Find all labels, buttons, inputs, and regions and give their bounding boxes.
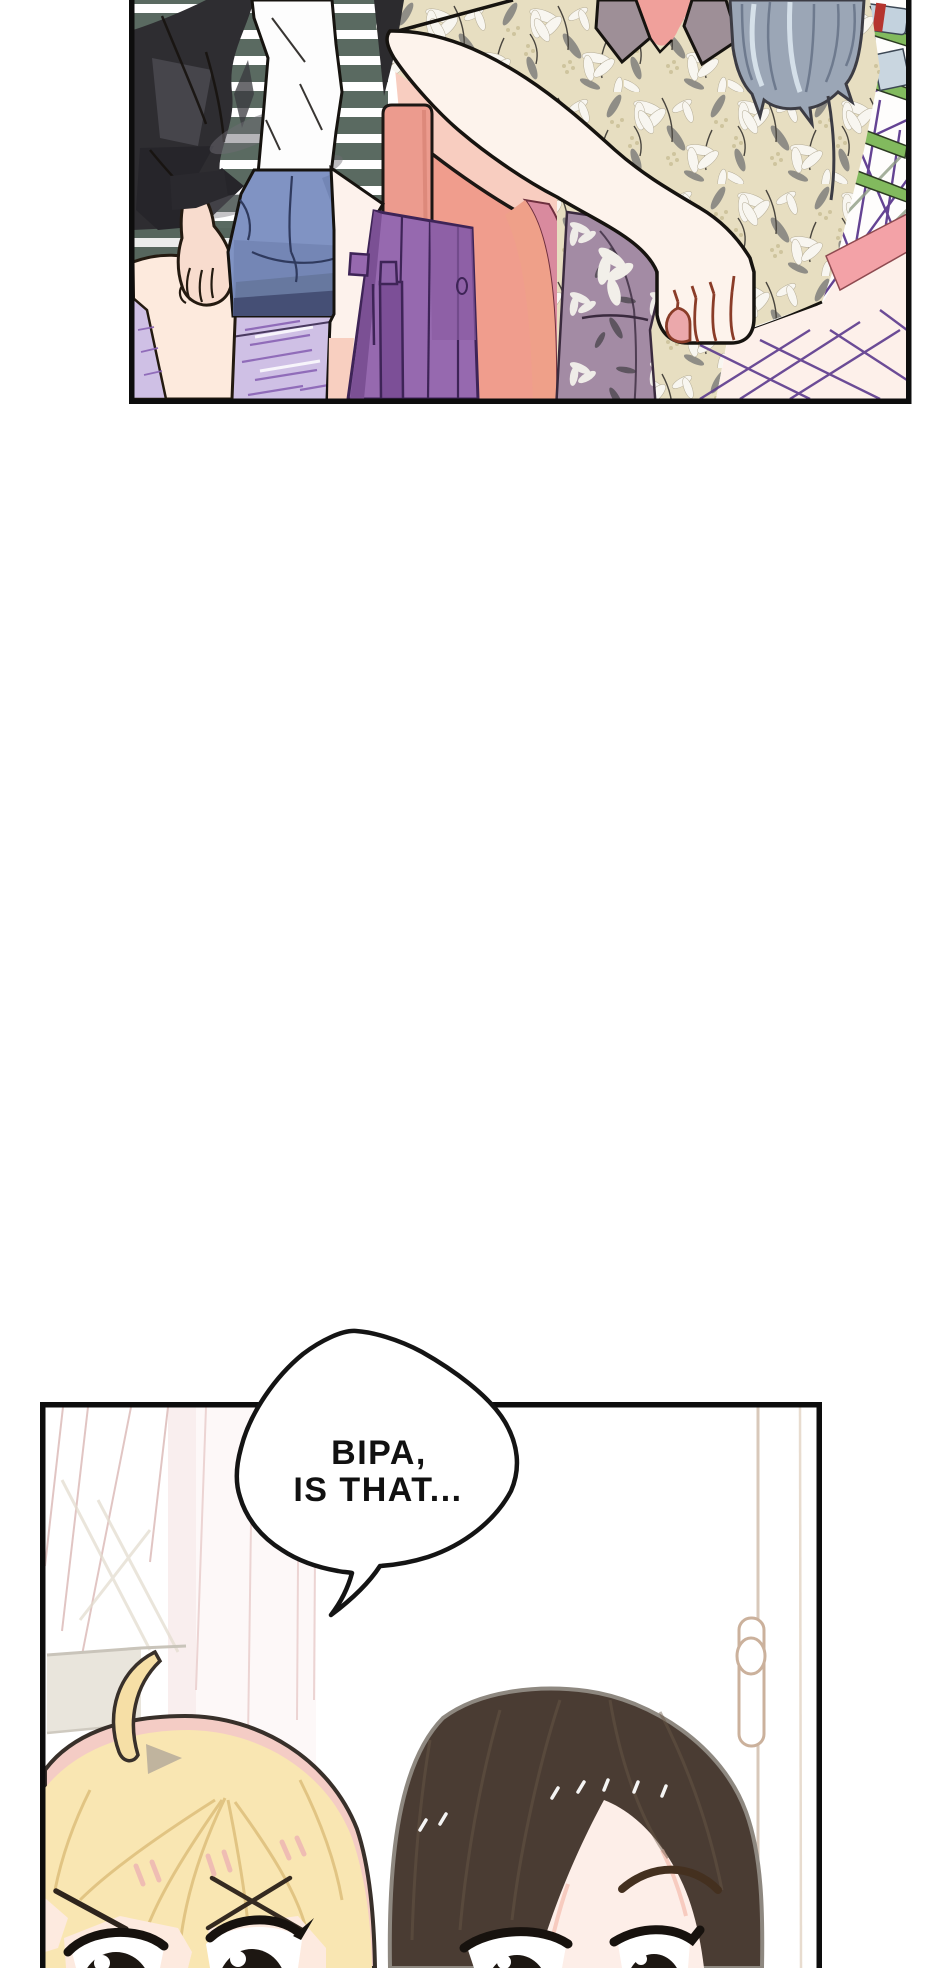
svg-text:BIPA,: BIPA, xyxy=(331,1434,427,1472)
svg-text:IS THAT...: IS THAT... xyxy=(293,1471,462,1509)
